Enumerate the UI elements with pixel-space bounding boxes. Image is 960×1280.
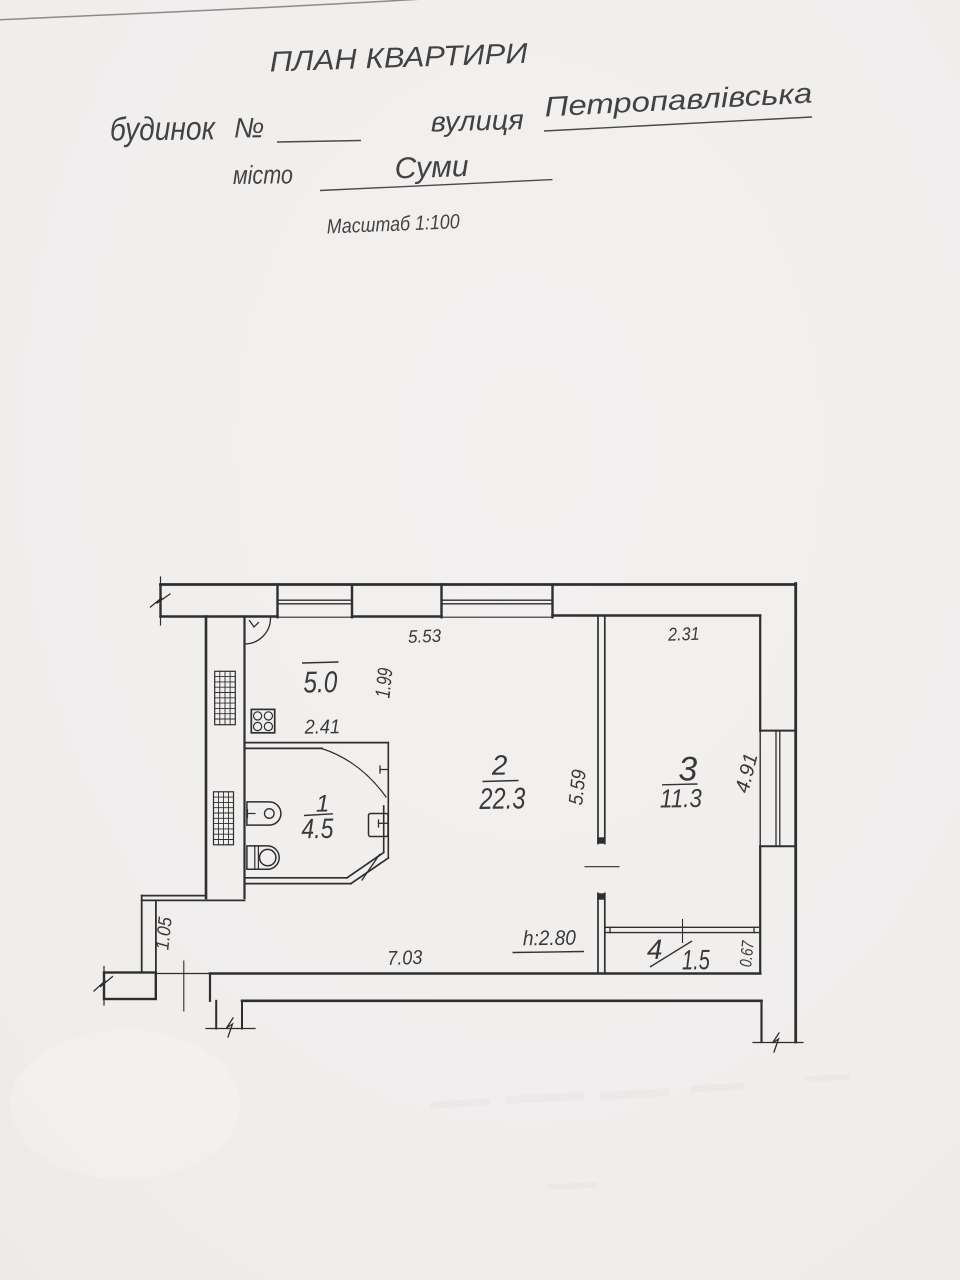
svg-text:h:2.80: h:2.80	[523, 927, 577, 951]
svg-text:1.5: 1.5	[682, 944, 711, 975]
svg-text:будинок: будинок	[110, 109, 217, 147]
svg-text:вулиця: вулиця	[430, 104, 524, 137]
svg-text:№: №	[234, 112, 265, 143]
svg-text:2: 2	[491, 750, 508, 781]
svg-text:Суми: Суми	[394, 150, 469, 186]
svg-text:2.41: 2.41	[304, 716, 341, 739]
svg-text:11.3: 11.3	[660, 783, 703, 814]
svg-text:7.03: 7.03	[387, 947, 423, 970]
svg-text:1.99: 1.99	[371, 667, 397, 699]
svg-text:0.67: 0.67	[736, 940, 758, 968]
svg-text:5.0: 5.0	[303, 666, 338, 699]
svg-text:4.5: 4.5	[301, 813, 334, 844]
svg-text:22.3: 22.3	[478, 782, 525, 816]
svg-text:1.05: 1.05	[152, 916, 176, 951]
svg-text:5.59: 5.59	[565, 769, 591, 807]
svg-text:2.31: 2.31	[667, 623, 700, 645]
svg-text:5.53: 5.53	[408, 626, 442, 647]
svg-text:місто: місто	[233, 159, 293, 190]
